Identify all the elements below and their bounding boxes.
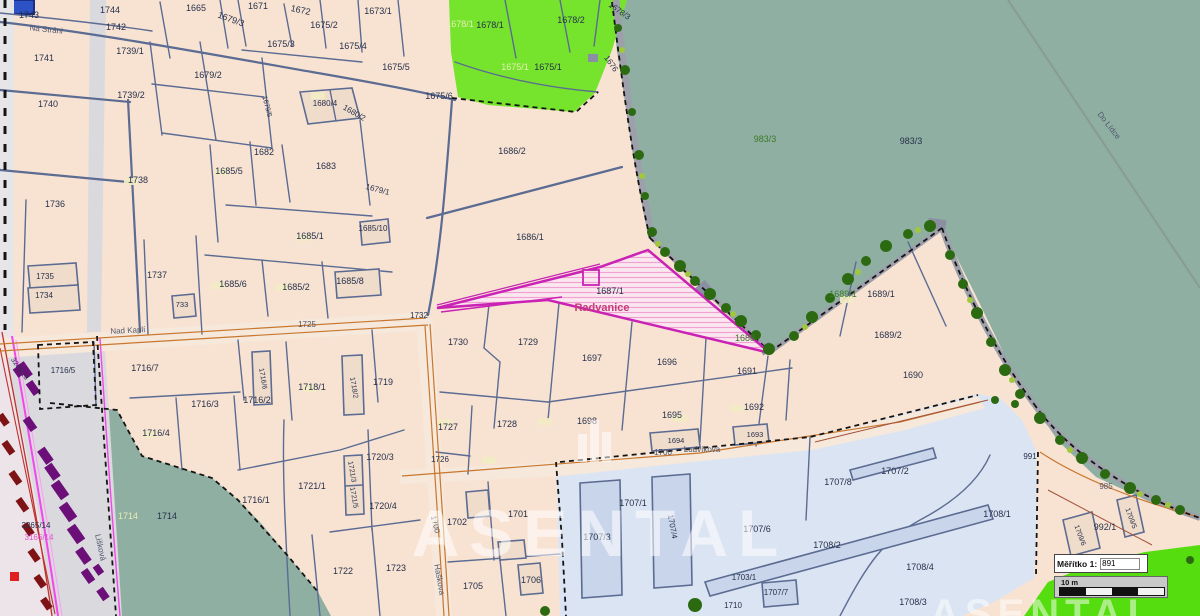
map-label: 1688 (735, 333, 755, 343)
map-label: 1700 (654, 448, 672, 457)
map-label: 1685/2 (282, 282, 310, 292)
map-label: Nad Kaplí (110, 325, 146, 336)
map-label: 1685/10 (359, 224, 388, 233)
map-label: 1689/1 (829, 289, 857, 299)
map-label: 1707/3 (583, 532, 611, 542)
map-label: 1723 (386, 563, 406, 573)
map-label: 1735 (36, 272, 54, 281)
map-label: 1675/1 (534, 62, 562, 72)
scale-label: Měřítko 1: (1057, 559, 1097, 569)
map-label: 1714 (118, 511, 138, 521)
map-label: 1686/1 (516, 232, 544, 242)
map-label: 1707/8 (824, 477, 852, 487)
map-label: 1707/6 (743, 524, 771, 534)
map-label: 1721/1 (298, 481, 326, 491)
map-label: 1708/2 (813, 540, 841, 550)
map-label: 1716/3 (191, 399, 219, 409)
map-label: 1697 (582, 353, 602, 363)
map-label: 1695 (662, 410, 682, 420)
map-label: 1678/1 (446, 19, 474, 29)
map-canvas[interactable]: 1743174417421665167116721673/11675/21679… (0, 0, 1200, 616)
map-label: 1741 (34, 53, 54, 63)
map-label: 1678/2 (557, 15, 585, 25)
scale-bar-box: 10 m (1054, 576, 1168, 598)
map-label: 1720/3 (366, 452, 394, 462)
scale-input-box: Měřítko 1: (1054, 554, 1148, 573)
map-label: 1729 (518, 337, 538, 347)
map-label: 1720/4 (369, 501, 397, 511)
map-label: 1708/4 (906, 562, 934, 572)
map-label: 3166/14 (25, 533, 54, 542)
map-label: 1722 (333, 566, 353, 576)
map-label: 1743 (19, 10, 39, 20)
map-label: 1675/1 (501, 62, 529, 72)
map-label: 1691 (737, 366, 757, 376)
map-label: 1665 (186, 3, 206, 13)
map-label: 1687/1 (596, 286, 624, 296)
map-label: 1714 (157, 511, 177, 521)
map-viewport[interactable]: 1743174417421665167116721673/11675/21679… (0, 0, 1200, 616)
map-label: 1732 (410, 311, 428, 320)
map-label: 3265/14 (22, 521, 51, 530)
map-label: 1675/6 (425, 91, 453, 101)
map-label: 1744 (100, 5, 120, 15)
scale-bar-label: 10 m (1061, 578, 1078, 587)
map-label: 1685/6 (219, 279, 247, 289)
map-label: 1675/5 (382, 62, 410, 72)
map-label: 983/3 (900, 136, 923, 146)
map-label: 1707/7 (764, 588, 789, 597)
map-label: 1716/2 (243, 395, 271, 405)
map-label: 1696 (657, 357, 677, 367)
map-label: 1708/3 (899, 597, 927, 607)
map-label: 1716/1 (242, 495, 270, 505)
scale-input[interactable] (1100, 558, 1140, 570)
map-label: 1675/3 (267, 39, 295, 49)
map-label: 1734 (35, 291, 53, 300)
map-label: 1673/1 (364, 6, 392, 16)
map-label: 1736 (45, 199, 65, 209)
map-label: 733 (176, 300, 189, 309)
map-label: 1726 (431, 455, 449, 464)
map-label: 1701 (508, 509, 528, 519)
map-label: 1685/1 (296, 231, 324, 241)
map-label: 1689/2 (874, 330, 902, 340)
map-label: 1689/1 (867, 289, 895, 299)
map-label: 1692 (744, 402, 764, 412)
map-label: 1716/5 (51, 366, 76, 375)
map-label: 992/1 (1094, 522, 1117, 532)
map-label: 1718/1 (298, 382, 326, 392)
map-label: 1678/1 (476, 20, 504, 30)
map-label: 1739/2 (117, 90, 145, 100)
map-label: 1708/1 (983, 509, 1011, 519)
map-label: 1738 (128, 175, 148, 185)
map-label: 1737 (147, 270, 167, 280)
map-label: 1683 (316, 161, 336, 171)
map-label: 1739/1 (116, 46, 144, 56)
scale-widget: Měřítko 1: 10 m (1054, 554, 1170, 598)
map-label: 1686/2 (498, 146, 526, 156)
map-label: 1719 (373, 377, 393, 387)
map-label: 1690 (903, 370, 923, 380)
map-label: 1702 (447, 517, 467, 527)
map-label: 991 (1023, 452, 1037, 461)
map-label: 1740 (38, 99, 58, 109)
map-label: 1716/7 (131, 363, 159, 373)
map-label: 983/3 (754, 134, 777, 144)
map-label: 1716/4 (142, 428, 170, 438)
map-label: 1727 (438, 422, 458, 432)
map-label: 1707/1 (619, 498, 647, 508)
map-label: 1707/2 (881, 466, 909, 476)
map-label: 1671 (248, 1, 268, 11)
map-label: 1698 (577, 416, 597, 426)
map-label: 1742 (106, 22, 126, 32)
map-label: 1675/2 (310, 20, 338, 30)
map-label: Radvanice (574, 302, 629, 314)
map-label: Ludvíkova (684, 445, 721, 454)
map-label: 1685/5 (215, 166, 243, 176)
map-label: 1693 (747, 430, 764, 439)
map-label: 1679/2 (194, 70, 222, 80)
map-label: 1706 (521, 575, 541, 585)
map-label: 1730 (448, 337, 468, 347)
map-label: 1705 (463, 581, 483, 591)
map-label: 1710 (724, 601, 742, 610)
scale-bar (1059, 587, 1165, 596)
map-label: 1703/1 (732, 573, 757, 582)
map-label: 985 (1099, 482, 1113, 491)
map-label: 1682 (254, 147, 274, 157)
map-label: 1694 (668, 436, 685, 445)
map-label: 1725 (298, 320, 316, 329)
map-label: 1728 (497, 419, 517, 429)
map-label: 1685/8 (336, 276, 364, 286)
map-label: 1680/4 (313, 99, 338, 108)
map-label: 1675/4 (339, 41, 367, 51)
